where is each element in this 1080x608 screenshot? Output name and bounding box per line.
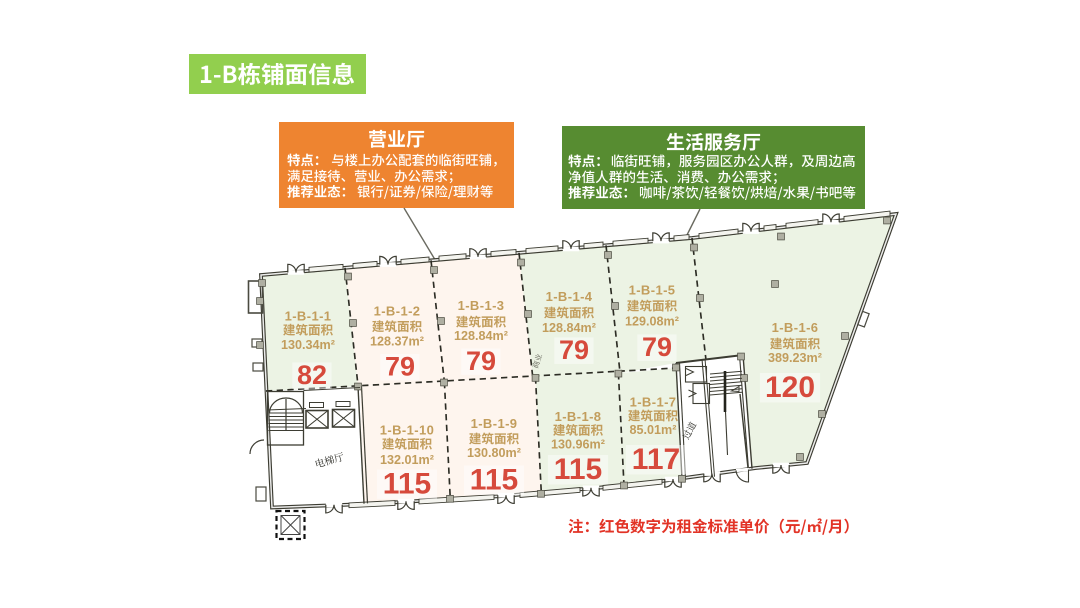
svg-text:129.08m²: 129.08m² (625, 315, 679, 329)
svg-text:1-B-1-8: 1-B-1-8 (555, 409, 602, 424)
svg-text:79: 79 (559, 335, 589, 365)
svg-text:128.84m²: 128.84m² (542, 321, 596, 335)
svg-text:120: 120 (765, 371, 815, 404)
svg-text:117: 117 (632, 443, 680, 476)
svg-text:1-B-1-10: 1-B-1-10 (380, 423, 435, 438)
svg-text:1-B-1-5: 1-B-1-5 (629, 283, 676, 298)
svg-text:79: 79 (385, 352, 415, 382)
svg-text:1-B-1-3: 1-B-1-3 (458, 298, 505, 313)
svg-text:1-B-1-4: 1-B-1-4 (546, 289, 593, 304)
svg-text:85.01m²: 85.01m² (630, 423, 677, 437)
svg-text:115: 115 (554, 453, 602, 486)
svg-text:128.37m²: 128.37m² (370, 335, 424, 349)
svg-text:389.23m²: 389.23m² (768, 351, 822, 365)
svg-text:115: 115 (383, 468, 431, 501)
svg-text:115: 115 (470, 464, 518, 497)
svg-text:1-B-1-9: 1-B-1-9 (471, 416, 518, 431)
svg-text:79: 79 (642, 332, 672, 362)
svg-text:130.34m²: 130.34m² (281, 338, 335, 352)
svg-text:132.01m²: 132.01m² (380, 453, 434, 467)
svg-text:130.96m²: 130.96m² (551, 438, 605, 452)
svg-text:79: 79 (466, 346, 496, 376)
svg-text:82: 82 (297, 360, 327, 390)
svg-text:1-B-1-2: 1-B-1-2 (374, 304, 421, 319)
svg-text:1-B-1-6: 1-B-1-6 (772, 320, 819, 335)
svg-text:128.84m²: 128.84m² (454, 329, 508, 343)
svg-text:130.80m²: 130.80m² (467, 446, 521, 460)
svg-text:1-B-1-1: 1-B-1-1 (285, 309, 332, 324)
svg-text:1-B-1-7: 1-B-1-7 (630, 395, 677, 410)
